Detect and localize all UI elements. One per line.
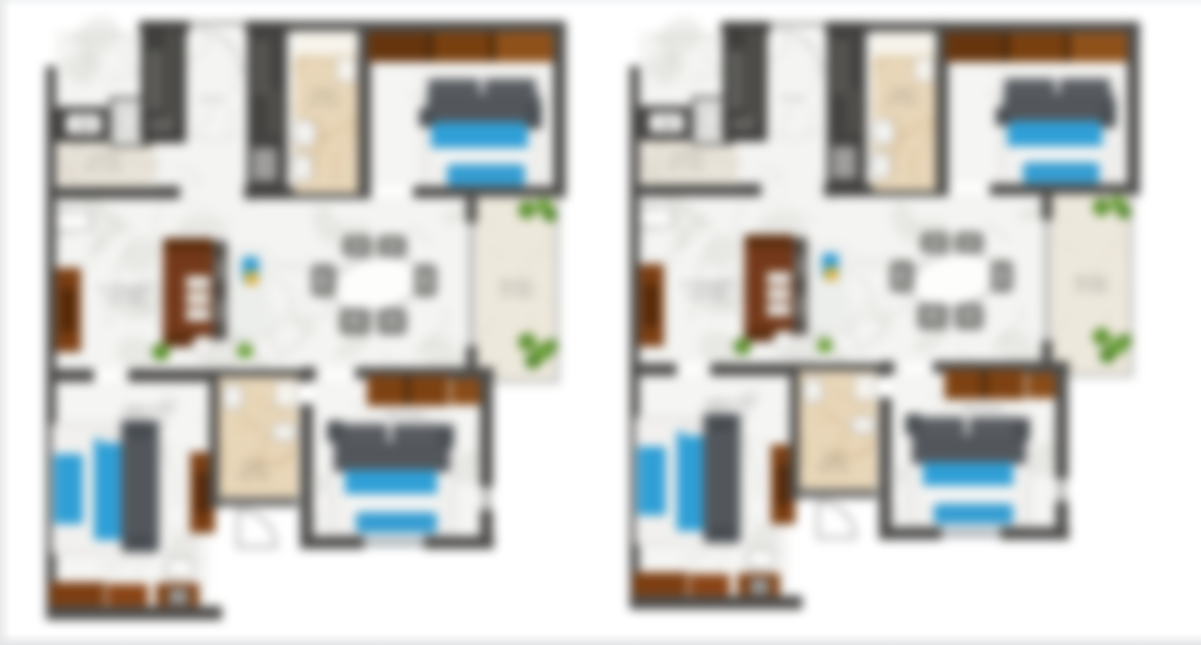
svg-text:HOB: HOB [658, 120, 675, 129]
svg-text:12'0" X 16'0": 12'0" X 16'0" [685, 290, 727, 299]
svg-text:12'0" X 16'0": 12'0" X 16'0" [103, 295, 146, 304]
svg-text:HOB: HOB [75, 121, 92, 130]
svg-text:LIVING/DINING: LIVING/DINING [98, 284, 151, 293]
svg-text:KITCHEN: KITCHEN [88, 153, 121, 162]
svg-text:M.BEDROOM: M.BEDROOM [124, 405, 171, 414]
svg-text:6'8" X 4'0": 6'8" X 4'0" [238, 473, 270, 480]
svg-text:8'0" X 10'0": 8'0" X 10'0" [85, 164, 124, 173]
svg-text:6'8" X 4'0": 6'8" X 4'0" [818, 465, 850, 472]
svg-text:4'0" WIDE: 4'0" WIDE [1076, 287, 1108, 294]
svg-text:M.BEDROOM: M.BEDROOM [707, 398, 753, 407]
svg-text:TOILET: TOILET [822, 455, 847, 462]
svg-text:4'0" X 8'0": 4'0" X 8'0" [308, 100, 340, 107]
svg-text:TOILET: TOILET [312, 90, 337, 97]
svg-text:LIVING/DINING: LIVING/DINING [680, 280, 732, 289]
svg-text:TOILET: TOILET [242, 463, 267, 470]
svg-text:4'0" X 8'0": 4'0" X 8'0" [887, 99, 919, 106]
svg-text:BALCONY: BALCONY [500, 281, 534, 288]
svg-text:BEDROOM: BEDROOM [386, 410, 425, 419]
svg-text:8'0" X 10'0": 8'0" X 10'0" [668, 162, 706, 171]
svg-text:FOYER: FOYER [781, 96, 805, 103]
svg-text:4'0" WIDE: 4'0" WIDE [501, 291, 533, 298]
svg-text:TOILET: TOILET [890, 89, 915, 96]
svg-text:FOYER: FOYER [200, 97, 224, 104]
svg-text:BEDROOM: BEDROOM [963, 403, 1001, 412]
svg-text:KITCHEN: KITCHEN [670, 151, 702, 160]
svg-text:BALCONY: BALCONY [1075, 277, 1108, 284]
